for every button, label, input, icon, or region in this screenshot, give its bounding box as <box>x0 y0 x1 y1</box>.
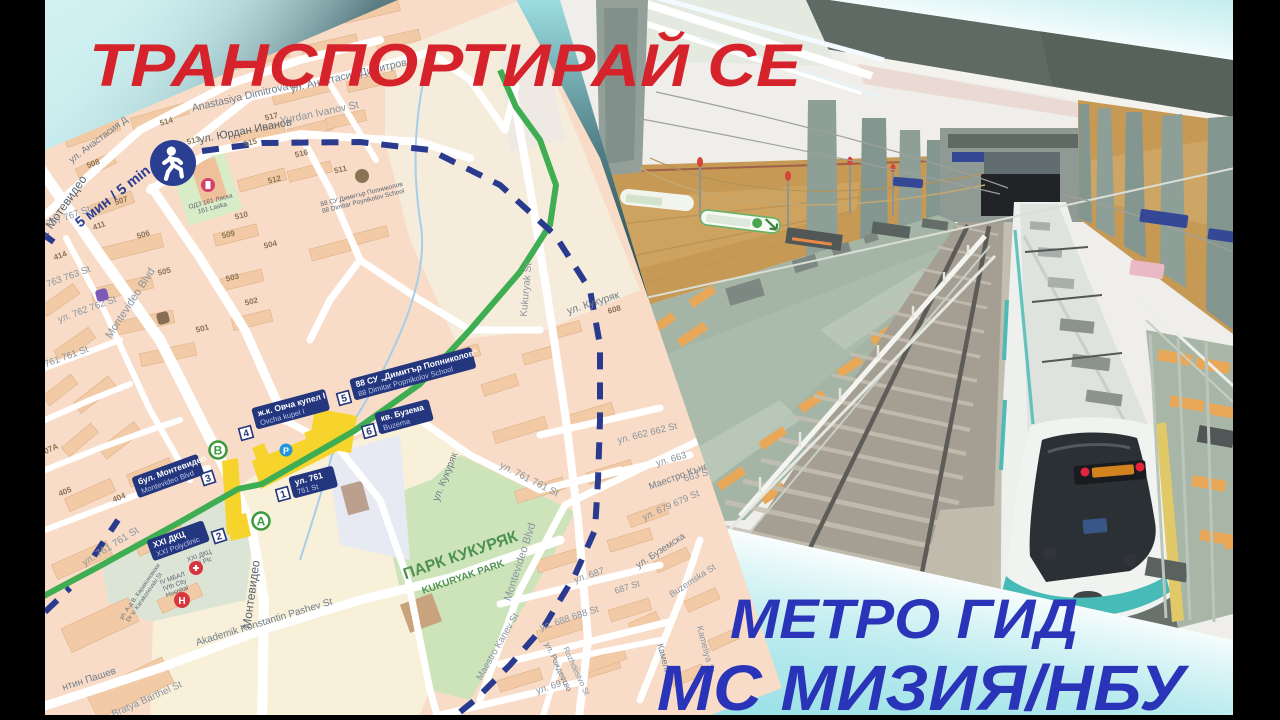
svg-text:A: A <box>257 515 266 529</box>
svg-text:P: P <box>283 446 289 456</box>
svg-text:МС МИЗИЯ/НБУ: МС МИЗИЯ/НБУ <box>657 652 1190 720</box>
svg-text:ТРАНСПОРТИРАЙ СЕ: ТРАНСПОРТИРАЙ СЕ <box>89 31 803 99</box>
svg-text:H: H <box>178 596 185 607</box>
svg-text:B: B <box>214 444 223 458</box>
svg-text:МЕТРО ГИД: МЕТРО ГИД <box>730 587 1078 650</box>
